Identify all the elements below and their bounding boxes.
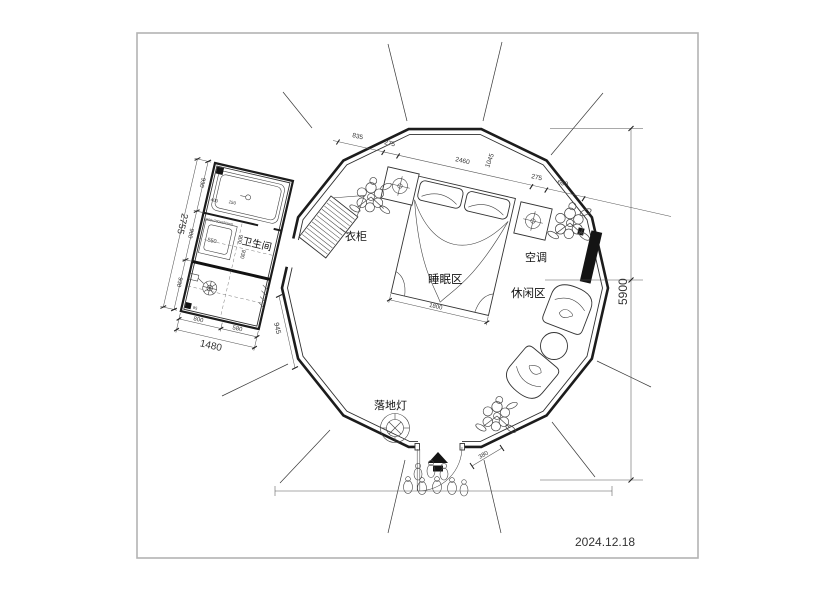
- svg-text:275: 275: [531, 173, 544, 182]
- wardrobe-label: 衣柜: [345, 229, 367, 243]
- svg-text:690: 690: [557, 179, 570, 188]
- shower-tray: 550: [198, 219, 237, 259]
- svg-text:930: 930: [175, 276, 183, 288]
- plant-3: [475, 396, 519, 434]
- svg-text:95: 95: [192, 305, 198, 311]
- svg-text:275: 275: [384, 139, 397, 148]
- svg-text:2460: 2460: [455, 156, 471, 166]
- drawing-date: 2024.12.18: [575, 535, 635, 549]
- entry-arrow-icon: [428, 452, 448, 463]
- svg-text:835: 835: [352, 132, 365, 141]
- nightstand-right: [514, 202, 552, 240]
- drawing-page: 2024.12.18: [0, 0, 837, 592]
- svg-text:5900: 5900: [616, 278, 630, 305]
- ground-line: [275, 486, 612, 496]
- svg-text:580: 580: [232, 325, 244, 333]
- nightstand-left: [381, 167, 419, 205]
- svg-text:1045: 1045: [484, 152, 496, 168]
- dim-door-offset: 380: [470, 445, 504, 469]
- svg-text:380: 380: [478, 450, 490, 461]
- floor-lamp-symbol: [381, 414, 410, 443]
- sleeping-area-label: 睡眠区: [428, 273, 463, 286]
- floor-plan-canvas: 2024.12.18: [0, 0, 837, 592]
- entry-door: [415, 444, 465, 492]
- floor-drain-symbol: [201, 280, 218, 297]
- svg-text:945: 945: [272, 322, 281, 335]
- svg-text:1480: 1480: [199, 338, 224, 354]
- svg-text:930: 930: [238, 249, 246, 259]
- svg-text:930: 930: [198, 177, 206, 189]
- air-conditioner-label: 空调: [525, 250, 547, 264]
- leisure-area-label: 休闲区: [511, 286, 546, 300]
- svg-text:400: 400: [210, 197, 219, 204]
- column: [216, 167, 224, 175]
- floor-lamp-label: 落地灯: [374, 399, 407, 412]
- svg-text:800: 800: [193, 316, 205, 324]
- air-conditioner-unit: [577, 227, 602, 283]
- bathroom-block: 400 150 1500x700x650mm 550 卫生间 900 930 9…: [150, 156, 295, 362]
- leisure-chair-1: [541, 280, 596, 336]
- svg-text:150: 150: [228, 199, 237, 206]
- wardrobe: [299, 179, 371, 257]
- round-table: [541, 333, 568, 360]
